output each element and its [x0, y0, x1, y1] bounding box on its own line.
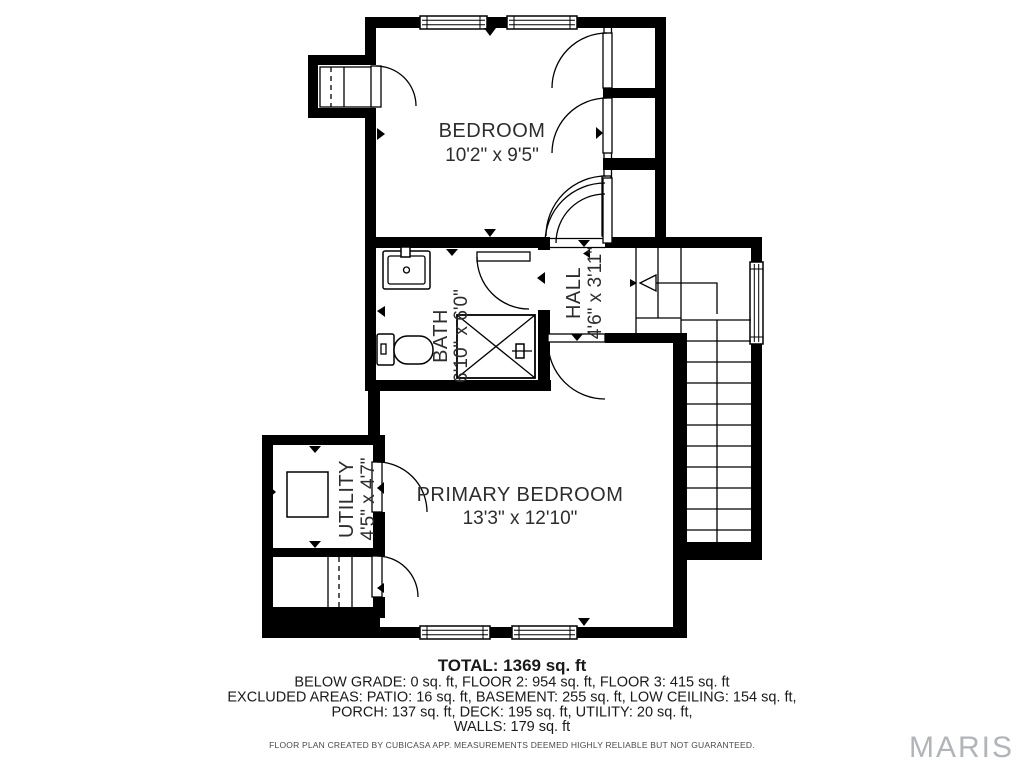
- bath-label: BATH: [430, 309, 452, 363]
- sink-icon: [383, 247, 430, 289]
- stair-direction-arrow-icon: [630, 275, 717, 314]
- door-swing: [371, 66, 416, 107]
- primary-bedroom-dims: 13'3" x 12'10": [463, 508, 578, 529]
- total-area: TOTAL: 1369 sq. ft: [438, 656, 587, 675]
- area-summary: TOTAL: 1369 sq. ft BELOW GRADE: 0 sq. ft…: [227, 656, 796, 750]
- floor-plan-page: BEDROOM 10'2" x 9'5" BATH 6'10" x 6'0" H…: [0, 0, 1024, 768]
- utility-label: UTILITY: [336, 460, 358, 538]
- toilet-icon: [377, 334, 433, 365]
- floor-areas: BELOW GRADE: 0 sq. ft, FLOOR 2: 954 sq. …: [294, 675, 729, 691]
- door-swing: [372, 556, 418, 597]
- bedroom-label: BEDROOM: [439, 120, 546, 142]
- hall-label: HALL: [563, 267, 585, 319]
- floor-plan-svg: BEDROOM 10'2" x 9'5" BATH 6'10" x 6'0" H…: [0, 0, 1024, 768]
- bedroom-dims: 10'2" x 9'5": [445, 145, 539, 166]
- excluded-areas-line3: WALLS: 179 sq. ft: [454, 719, 570, 735]
- utility-dims: 4'5" x 4'7": [358, 457, 379, 540]
- window-icon: [507, 16, 577, 29]
- window-icon: [512, 626, 577, 639]
- window-icon: [420, 626, 490, 639]
- hall-dims: 4'6" x 3'11": [585, 247, 606, 339]
- door-swing: [552, 33, 612, 88]
- door-swing: [548, 334, 605, 399]
- door-swing: [546, 176, 611, 236]
- door-swing: [552, 98, 612, 153]
- attribution-note: FLOOR PLAN CREATED BY CUBICASA APP. MEAS…: [269, 740, 755, 750]
- window-icon: [750, 262, 763, 344]
- maris-logo: MARIS: [909, 731, 1014, 764]
- door-swing: [477, 252, 530, 309]
- window-icon: [420, 16, 487, 29]
- primary-bedroom-label: PRIMARY BEDROOM: [417, 484, 624, 506]
- excluded-areas-line1: EXCLUDED AREAS: PATIO: 16 sq. ft, BASEME…: [227, 690, 796, 706]
- water-heater-icon: [287, 472, 328, 517]
- stairs: [630, 248, 751, 542]
- closet-shelf: [320, 67, 374, 107]
- bath-dims: 6'10" x 6'0": [451, 289, 472, 383]
